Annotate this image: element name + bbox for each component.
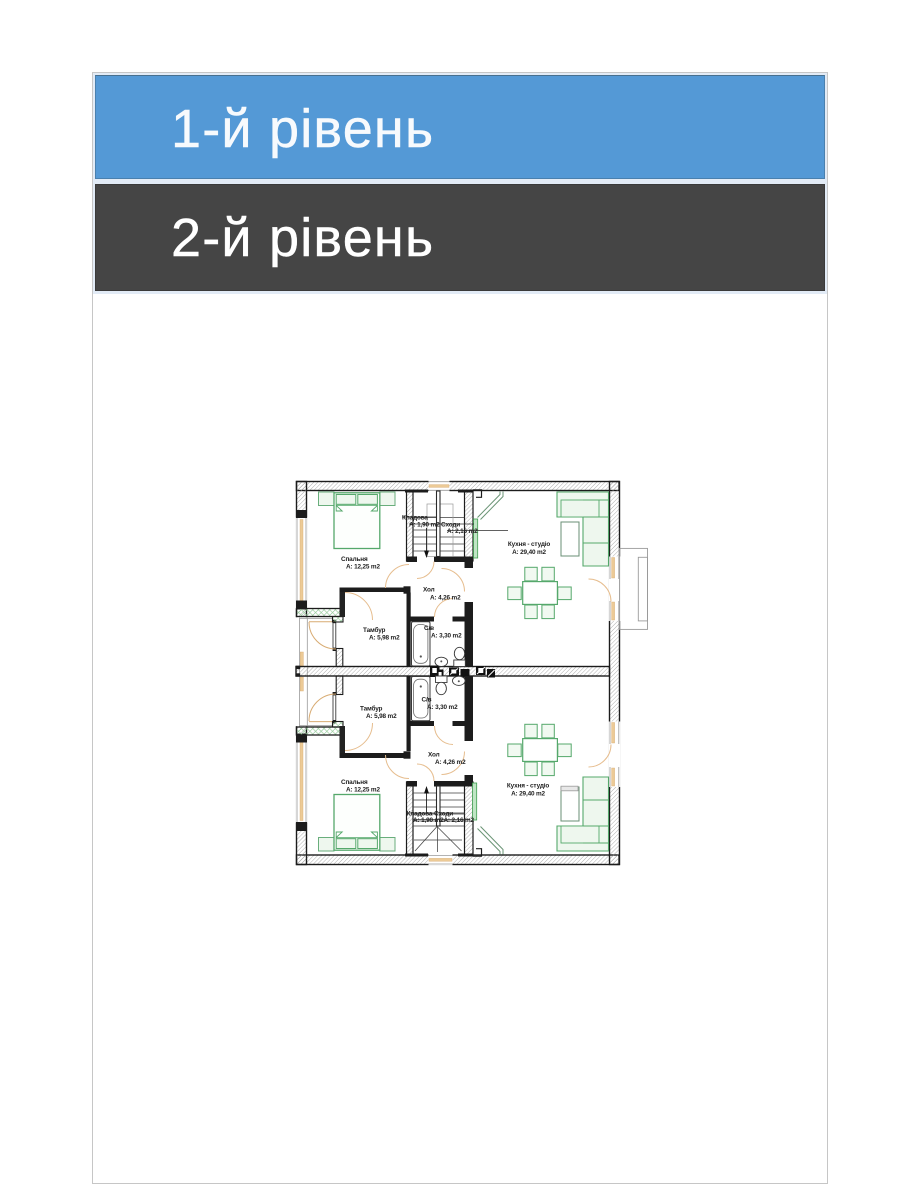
svg-text:Кухня - студіо: Кухня - студіо xyxy=(508,540,550,548)
svg-text:А: 3,30 m2: А: 3,30 m2 xyxy=(427,704,458,711)
svg-text:С/в: С/в xyxy=(424,625,434,632)
svg-text:Хол: Хол xyxy=(423,587,435,594)
svg-text:А: 5,98 m2: А: 5,98 m2 xyxy=(369,635,400,642)
svg-text:Хол: Хол xyxy=(428,752,440,759)
svg-text:А: 4,26 m2: А: 4,26 m2 xyxy=(430,595,461,602)
svg-text:А: 12,25 m2: А: 12,25 m2 xyxy=(346,787,380,794)
svg-text:А: 29,40 m2: А: 29,40 m2 xyxy=(512,549,546,556)
svg-text:Спальня: Спальня xyxy=(341,779,368,786)
svg-text:Тамбур: Тамбур xyxy=(363,626,386,634)
svg-text:А: 12,25 m2: А: 12,25 m2 xyxy=(346,564,380,571)
svg-text:А: 2,16 m2: А: 2,16 m2 xyxy=(447,528,478,535)
svg-text:Кладова: Кладова xyxy=(402,515,428,522)
svg-text:А: 4,26 m2: А: 4,26 m2 xyxy=(435,759,466,766)
svg-text:А: 5,98 m2: А: 5,98 m2 xyxy=(366,713,397,720)
svg-text:Тамбур: Тамбур xyxy=(360,705,383,713)
svg-text:А: 1,90 m2А: 2,16 m2: А: 1,90 m2А: 2,16 m2 xyxy=(413,817,475,824)
svg-text:Спальня: Спальня xyxy=(341,556,368,563)
svg-text:А: 1,90 m2: А: 1,90 m2 xyxy=(409,522,440,529)
svg-text:С/в: С/в xyxy=(422,697,432,704)
svg-text:Кухня - студіо: Кухня - студіо xyxy=(507,782,549,790)
svg-text:А: 3,30 m2: А: 3,30 m2 xyxy=(431,633,462,640)
svg-text:А: 29,40 m2: А: 29,40 m2 xyxy=(511,791,545,798)
